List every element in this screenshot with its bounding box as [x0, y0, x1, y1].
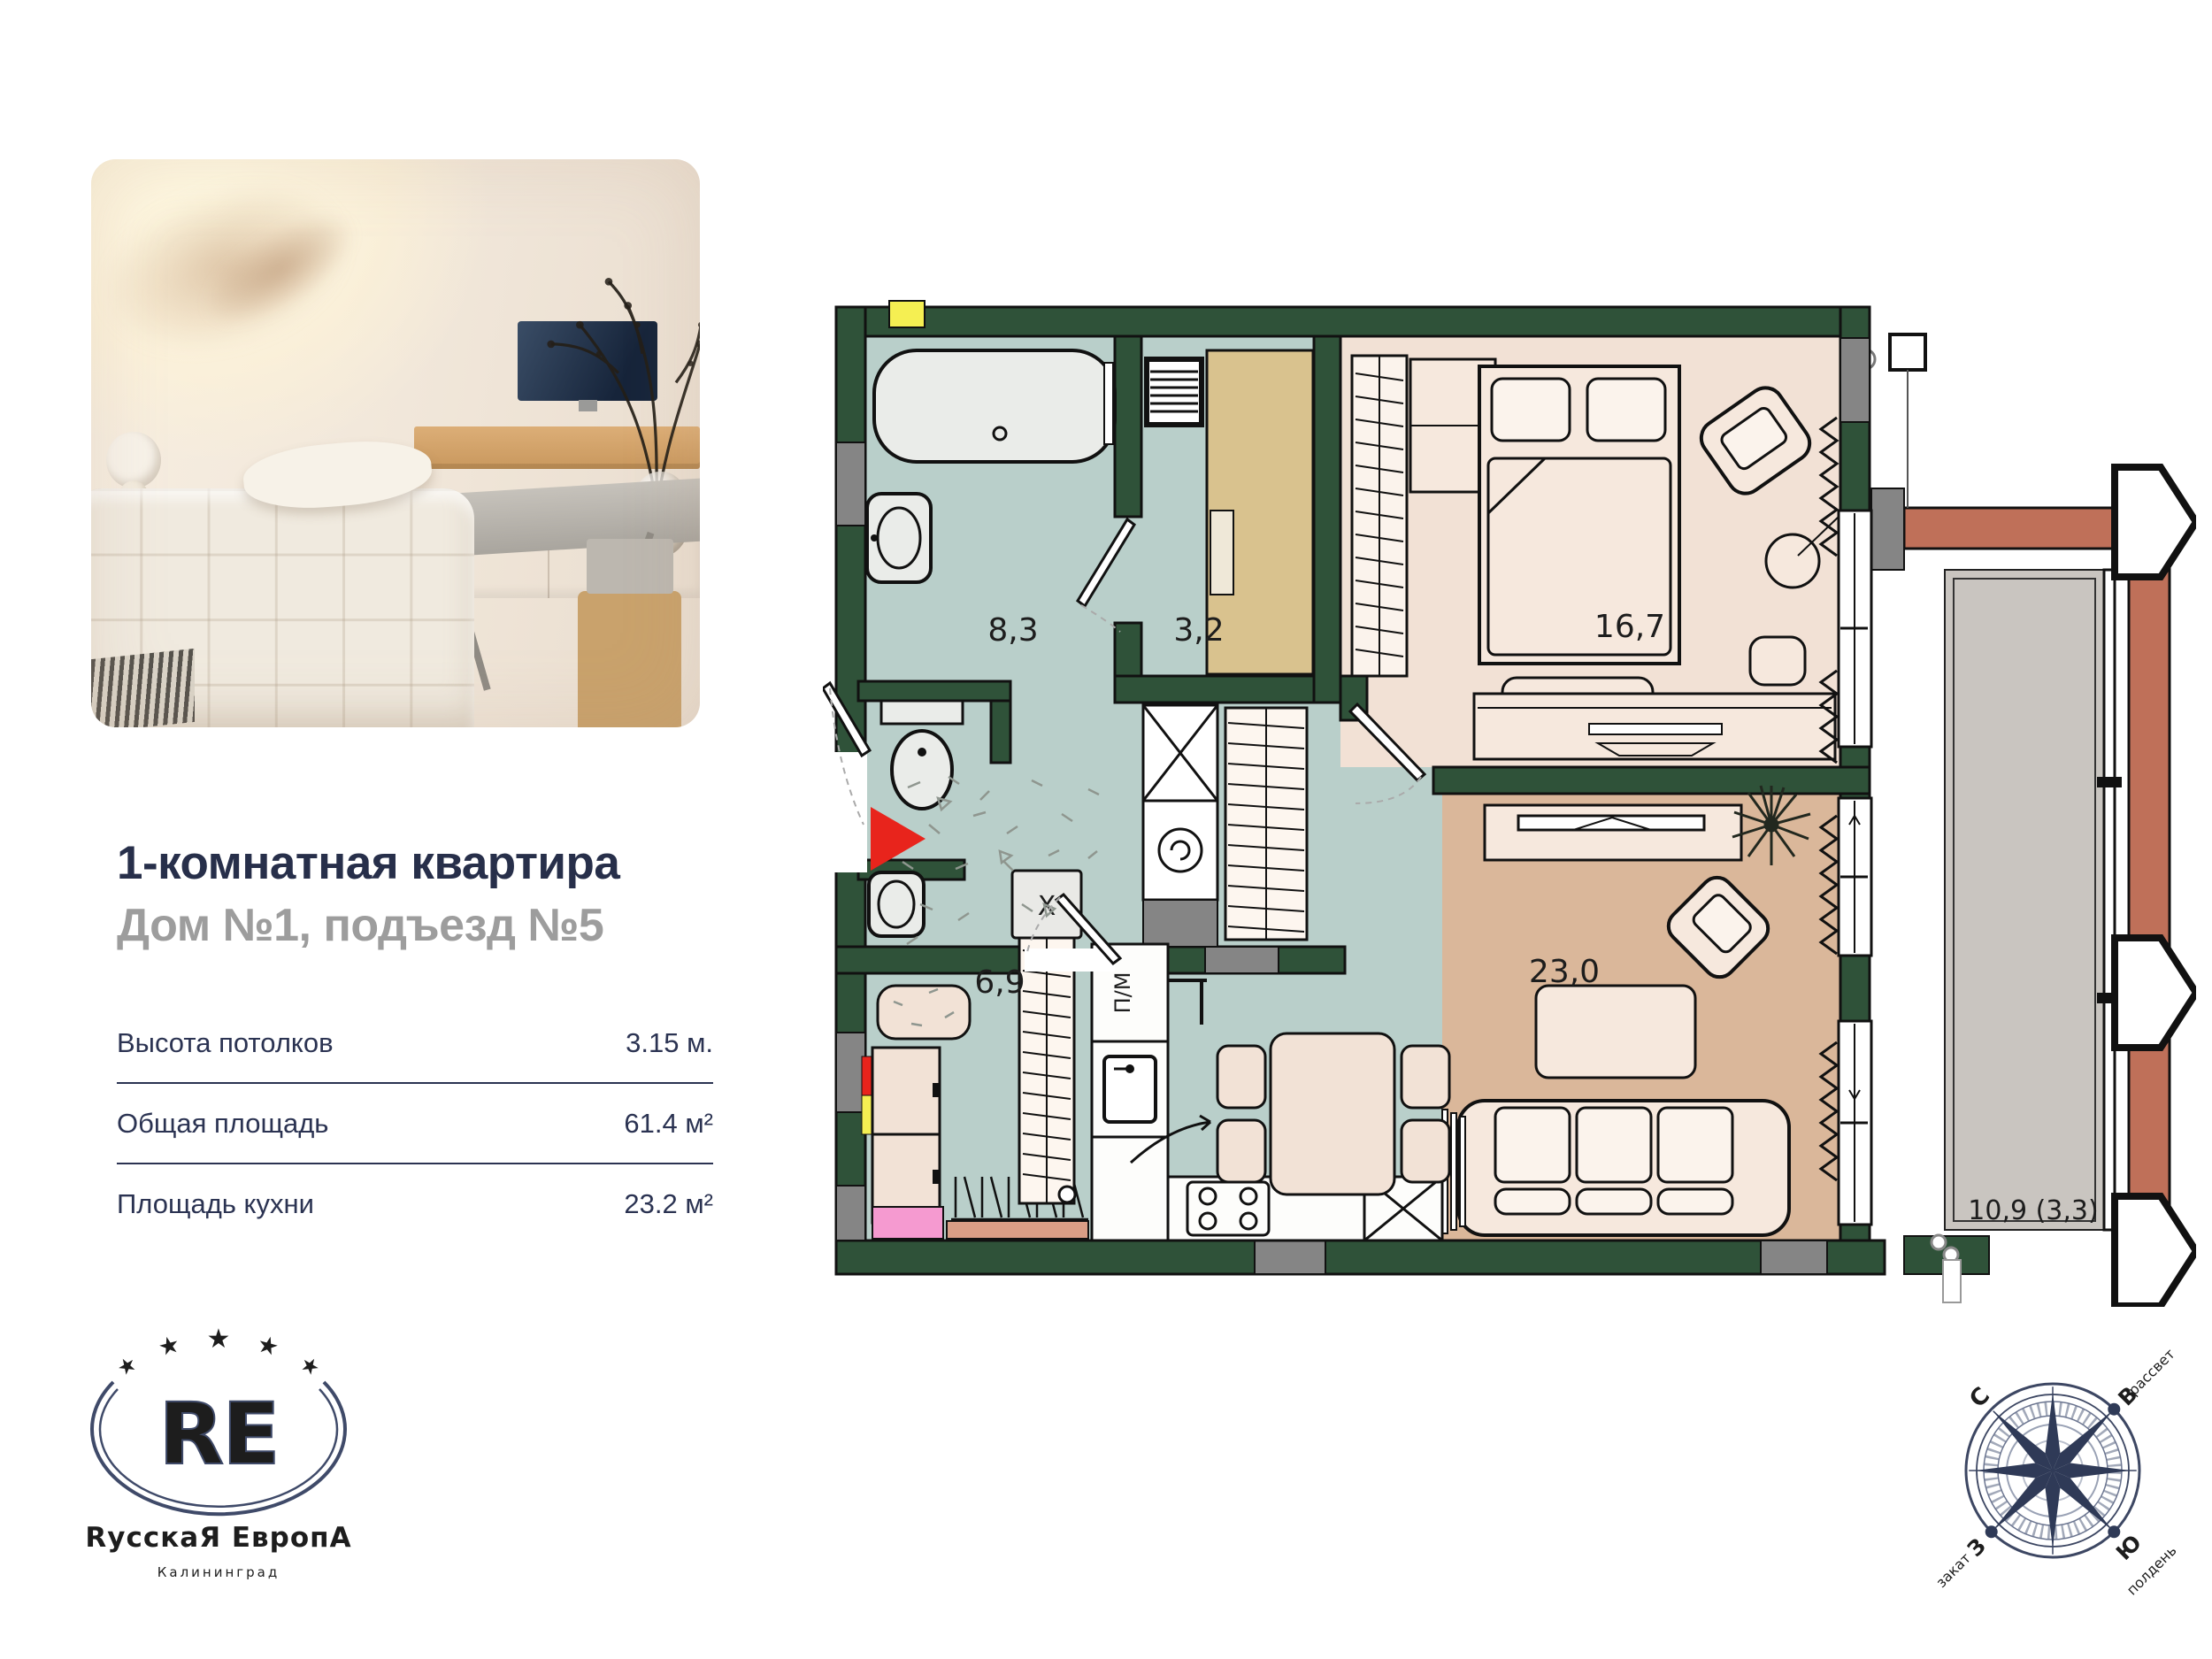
pillow [1587, 379, 1665, 441]
wall-wc-stub-1 [858, 681, 1010, 701]
bedroom-window [1839, 511, 1871, 747]
tv-stand [1485, 805, 1741, 860]
sofa-seat [1658, 1189, 1732, 1214]
cabinet-handle [933, 1083, 940, 1097]
dishwasher-label: П/М [1110, 972, 1135, 1014]
marker-pink [872, 1207, 943, 1239]
sink-tap [871, 534, 878, 541]
specs-table: Высота потолков 3.15 м. Общая площадь 61… [117, 1003, 713, 1243]
sofa-cushion [1658, 1108, 1732, 1182]
spec-row-ceiling: Высота потолков 3.15 м. [117, 1003, 713, 1084]
compass-sunrise: рассвет [2125, 1346, 2178, 1399]
shaft [1761, 1240, 1827, 1274]
living-window-2 [1839, 1021, 1871, 1225]
glazing-mullion [2097, 777, 2122, 787]
shaft [1871, 488, 1904, 570]
dining-chair [1217, 1046, 1265, 1108]
balcony-brick-wall-right [2129, 549, 2170, 1236]
marker-yellow [862, 1095, 872, 1134]
doormat [878, 986, 970, 1039]
page-subtitle: Дом №1, подъезд №5 [117, 899, 713, 952]
interior-photo [91, 159, 700, 727]
sofa-seat [1495, 1189, 1570, 1214]
downpipe [1943, 1260, 1961, 1302]
dining-table [1271, 1033, 1394, 1194]
listing-header: 1-комнатная квартира Дом №1, подъезд №5 [117, 839, 713, 952]
compass-sunset: закат [1932, 1549, 1974, 1591]
bay-window-marker [2115, 938, 2196, 1048]
toilet-bowl [892, 731, 952, 809]
spec-label: Общая площадь [117, 1108, 328, 1140]
star-icon: ★ [296, 1350, 325, 1381]
sofa-seat [1577, 1189, 1651, 1214]
spec-row-kitchen-area: Площадь кухни 23.2 м² [117, 1164, 713, 1243]
wall-wc-stub-2 [991, 701, 1010, 763]
wall-bottom [836, 1240, 1885, 1274]
pillow [1492, 379, 1570, 441]
wall-dressing-bedroom [1314, 336, 1340, 703]
spec-label: Высота потолков [117, 1027, 334, 1059]
washing-machine [1143, 801, 1217, 900]
balcony [1855, 334, 2196, 1306]
shaft [1143, 900, 1217, 947]
sofa-cushion [1495, 1108, 1570, 1182]
dining-chair [1402, 1046, 1449, 1108]
photo-vignette [91, 159, 700, 727]
marker-yellow [889, 301, 925, 327]
star-icon: ★ [254, 1330, 281, 1362]
cabinet-handle [933, 1170, 940, 1184]
wardrobe-handle [1210, 511, 1233, 595]
bay-window-marker [2115, 1196, 2196, 1306]
wall-bath-dressing [1115, 336, 1141, 517]
page-title: 1-комнатная квартира [117, 839, 713, 888]
balcony-glazing [2104, 570, 2115, 1230]
threshold-strip [947, 1221, 1088, 1239]
compass-rose: С В З Ю рассвет закат полдень [1929, 1338, 2194, 1603]
logo-city: Калининград [157, 1564, 280, 1580]
logo-stars: ★ ★ ★ ★ ★ [112, 1324, 325, 1381]
wall-top [836, 307, 1870, 336]
stove [1187, 1182, 1269, 1235]
area-hall: 6,9 [974, 964, 1025, 1001]
balcony-floor [1945, 570, 2104, 1230]
desk-tray [1589, 724, 1722, 734]
bath-screen [1104, 363, 1113, 444]
spec-row-total-area: Общая площадь 61.4 м² [117, 1084, 713, 1164]
bathtub [874, 350, 1115, 462]
spec-label: Площадь кухни [117, 1188, 314, 1220]
shaft [1840, 338, 1870, 422]
bay-window-marker [2115, 467, 2196, 577]
shaft [1255, 1240, 1325, 1274]
marker-red [862, 1056, 872, 1095]
entry-opening [834, 752, 867, 872]
logo-monogram: RE [158, 1385, 279, 1484]
shaft [836, 1033, 865, 1112]
sofa-cushion [1577, 1108, 1651, 1182]
star-icon: ★ [207, 1324, 231, 1355]
dining-chair [1217, 1120, 1265, 1182]
hall-cabinet [872, 1048, 940, 1134]
coffee-table [1536, 986, 1695, 1078]
desk-stool [1750, 637, 1805, 685]
area-bathroom: 8,3 [987, 612, 1038, 649]
spec-value: 23.2 м² [624, 1188, 713, 1220]
floor-plan: X П/М [823, 285, 2196, 1307]
toilet-tank [881, 701, 963, 724]
wall-bedroom-living [1433, 767, 1870, 794]
star-icon: ★ [155, 1330, 182, 1362]
area-dressing: 3,2 [1173, 612, 1224, 649]
page: 1-комнатная квартира Дом №1, подъезд №5 … [0, 0, 2212, 1659]
vent-grate [1147, 359, 1202, 425]
living-window-1 [1839, 798, 1871, 956]
kitchen-counter [1092, 1137, 1168, 1240]
logo-name: RусскаЯ ЕвропА [85, 1522, 351, 1554]
toilet-flush [918, 748, 926, 757]
shaft [836, 1186, 865, 1240]
spec-value: 61.4 м² [624, 1108, 713, 1140]
area-balcony: 10,9 (3,3) [1968, 1195, 2098, 1226]
windows [1839, 511, 1871, 1225]
company-logo: ★ ★ ★ ★ ★ RE RусскаЯ ЕвропА Калининград [84, 1315, 367, 1589]
area-living: 23,0 [1529, 954, 1600, 990]
shaft [1205, 947, 1279, 973]
shaft [836, 442, 865, 526]
spec-value: 3.15 м. [626, 1027, 713, 1059]
duct-symbol [1890, 334, 1925, 370]
coat-rack-knob [1059, 1187, 1075, 1202]
dining-chair [1402, 1120, 1449, 1182]
drain-symbol [1932, 1235, 1946, 1249]
area-bedroom: 16,7 [1594, 609, 1665, 645]
star-icon: ★ [112, 1350, 142, 1381]
